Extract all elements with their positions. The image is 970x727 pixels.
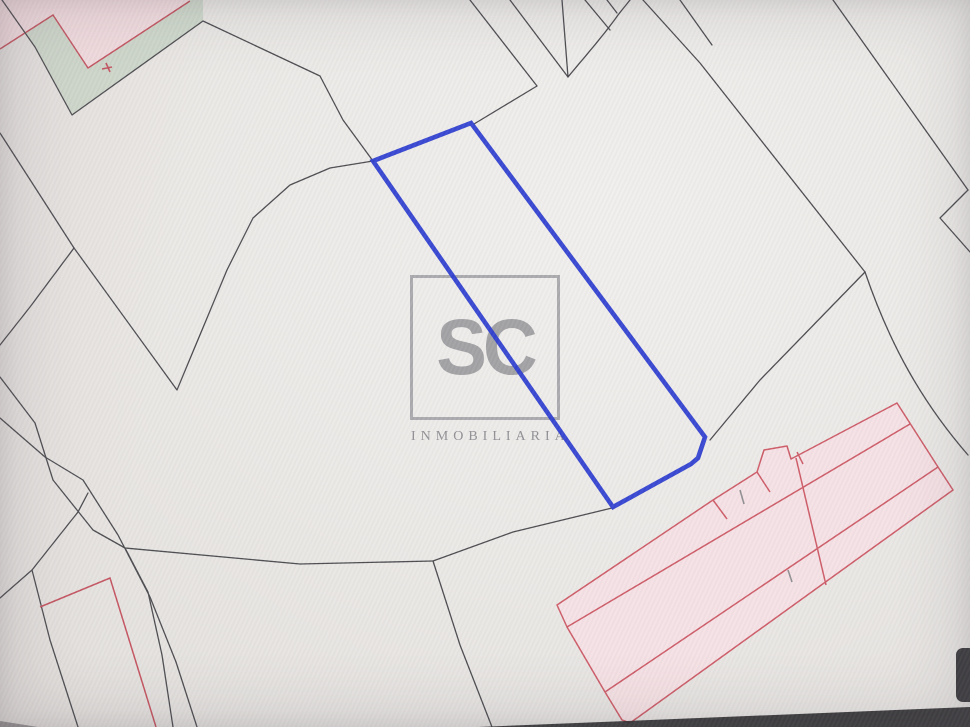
selected-parcel-outline[interactable]: [373, 123, 705, 507]
map-viewer-screenshot: SC INMOBILIARIA: [0, 0, 970, 727]
screen-bezel-corner: [0, 721, 38, 727]
screen-edge-tab: [956, 648, 970, 702]
screen-bezel-edge: [478, 707, 970, 727]
map-overlay-canvas: [0, 0, 970, 727]
